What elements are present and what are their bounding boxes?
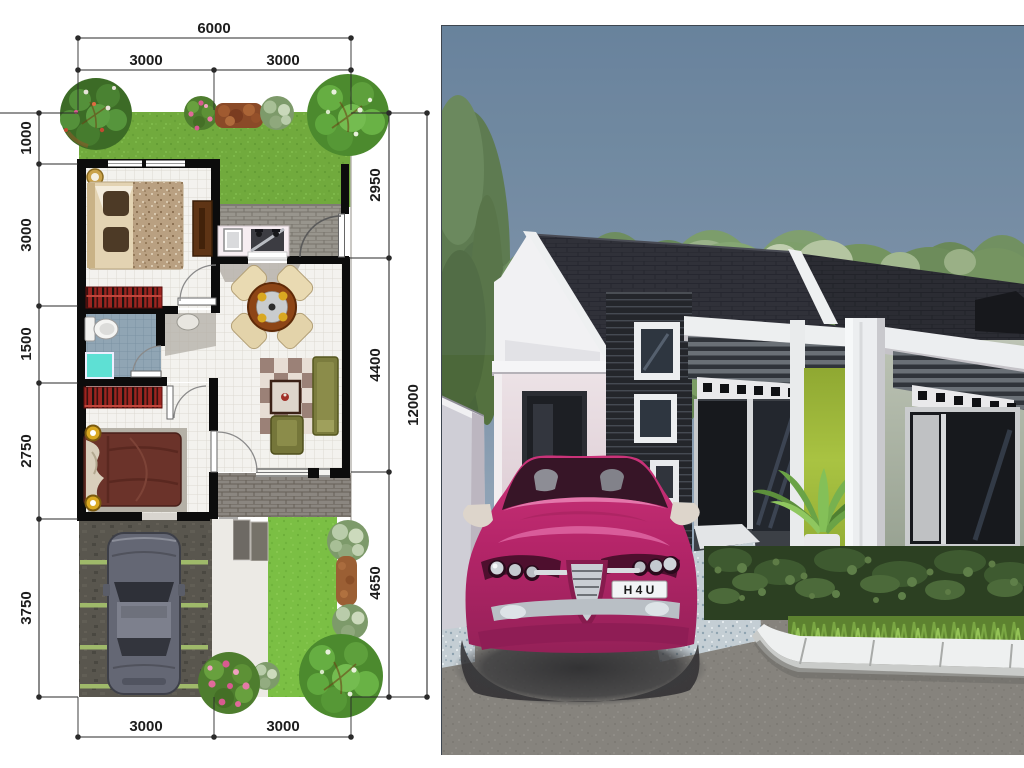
svg-text:3000: 3000 bbox=[129, 52, 162, 69]
svg-text:2950: 2950 bbox=[367, 168, 384, 201]
svg-text:4650: 4650 bbox=[367, 566, 384, 599]
svg-text:2750: 2750 bbox=[18, 434, 35, 467]
svg-text:3000: 3000 bbox=[266, 718, 299, 735]
svg-text:3000: 3000 bbox=[18, 218, 35, 251]
svg-text:3750: 3750 bbox=[18, 591, 35, 624]
svg-text:1500: 1500 bbox=[18, 327, 35, 360]
svg-text:6000: 6000 bbox=[197, 20, 230, 37]
svg-text:4400: 4400 bbox=[367, 348, 384, 381]
svg-text:12000: 12000 bbox=[405, 384, 422, 426]
svg-text:1000: 1000 bbox=[18, 121, 35, 154]
svg-text:H 4 U: H 4 U bbox=[624, 583, 655, 597]
svg-text:3000: 3000 bbox=[129, 718, 162, 735]
svg-text:3000: 3000 bbox=[266, 52, 299, 69]
